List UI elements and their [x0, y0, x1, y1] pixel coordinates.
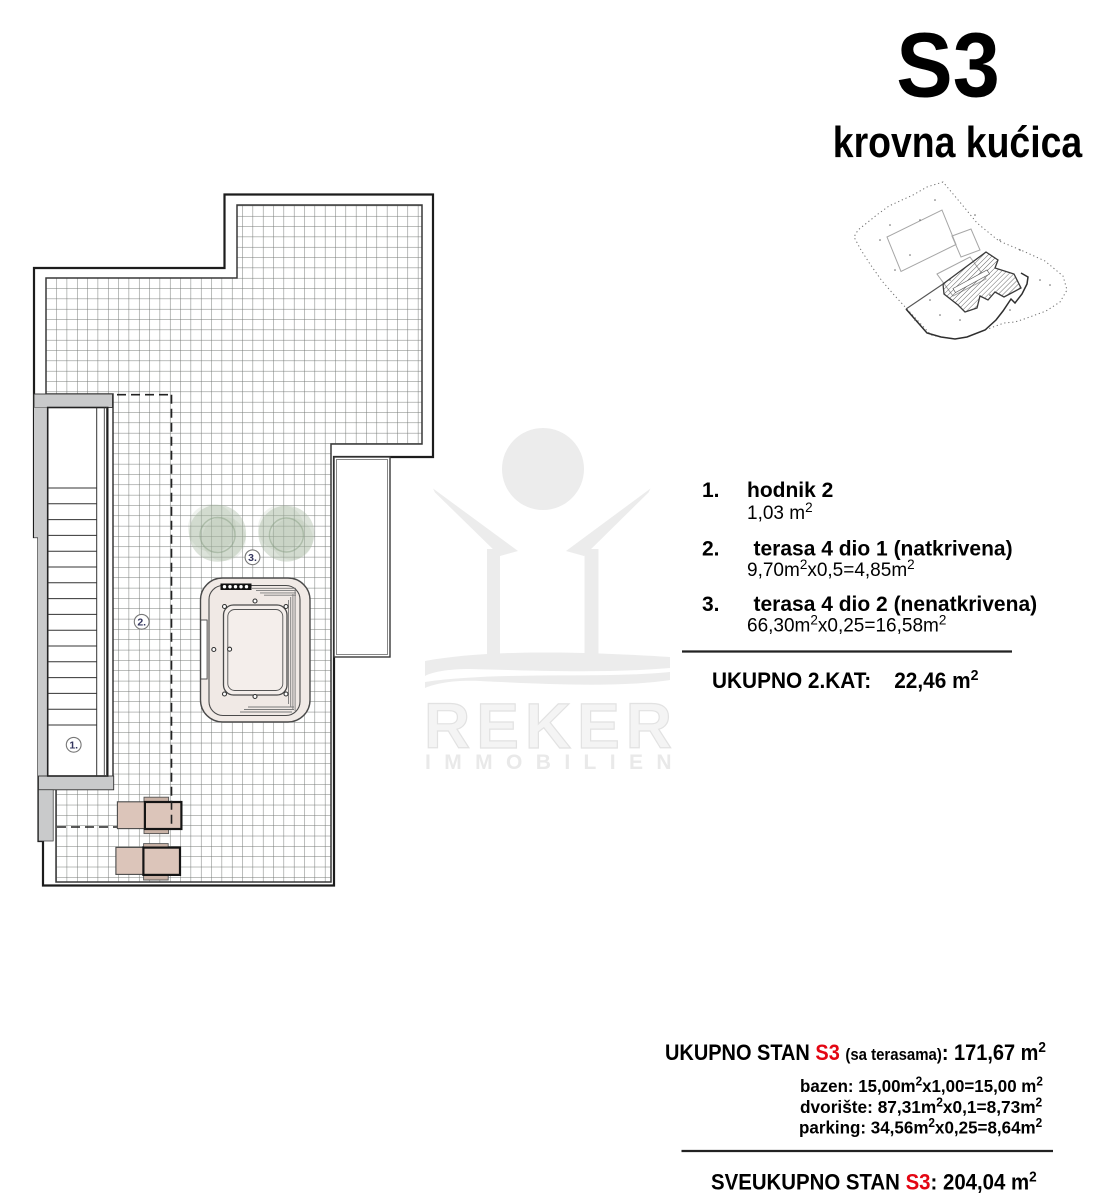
svg-text:3.: 3.: [702, 593, 720, 616]
svg-text:66,30m2x0,25=16,58m2: 66,30m2x0,25=16,58m2: [747, 613, 946, 637]
svg-text:parking: 34,56m2x0,25=8,64m2: parking: 34,56m2x0,25=8,64m2: [799, 1116, 1042, 1138]
svg-text:bazen: 15,00m2x1,00=15,00 m2: bazen: 15,00m2x1,00=15,00 m2: [800, 1074, 1043, 1096]
svg-text:SVEUKUPNO STAN S3: 204,04 m2: SVEUKUPNO STAN S3: 204,04 m2: [711, 1169, 1037, 1195]
svg-text:9,70m2x0,5=4,85m2: 9,70m2x0,5=4,85m2: [747, 557, 915, 581]
svg-text:IMMOBILIEN: IMMOBILIEN: [425, 751, 685, 774]
svg-text:1.: 1.: [69, 740, 78, 752]
svg-text:UKUPNO 2.KAT: 22,46 m2: UKUPNO 2.KAT: 22,46 m2: [712, 668, 978, 693]
svg-text:3.: 3.: [248, 552, 257, 564]
svg-text:S3: S3: [896, 13, 1000, 116]
svg-text:hodnik 2: hodnik 2: [747, 479, 833, 502]
svg-text:1.: 1.: [702, 479, 720, 502]
svg-text:terasa 4 dio 2 (nenatkrivena): terasa 4 dio 2 (nenatkrivena): [754, 593, 1038, 616]
svg-text:1,03 m2: 1,03 m2: [747, 500, 813, 524]
svg-text:terasa 4 dio 1 (natkrivena): terasa 4 dio 1 (natkrivena): [754, 538, 1013, 561]
svg-text:dvorište: 87,31m2x0,1=8,73m2: dvorište: 87,31m2x0,1=8,73m2: [800, 1095, 1042, 1117]
svg-text:krovna kućica: krovna kućica: [833, 117, 1083, 167]
svg-text:2.: 2.: [137, 617, 146, 629]
svg-text:2.: 2.: [702, 538, 720, 561]
